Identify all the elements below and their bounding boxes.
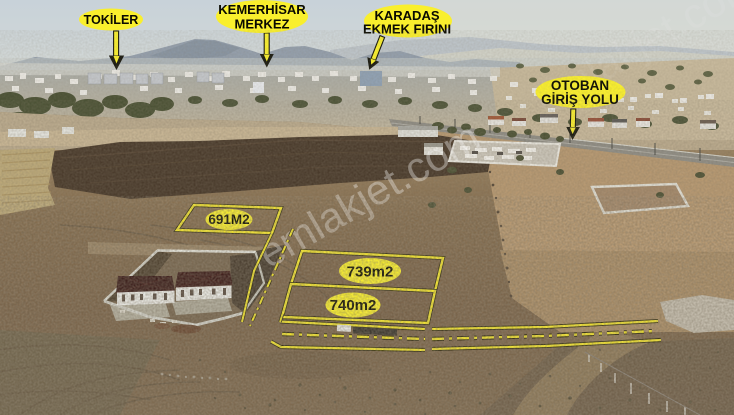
svg-text:TOKİLER: TOKİLER (84, 12, 139, 27)
svg-text:KEMERHİSAR: KEMERHİSAR (218, 2, 306, 17)
svg-text:MERKEZ: MERKEZ (235, 17, 290, 32)
